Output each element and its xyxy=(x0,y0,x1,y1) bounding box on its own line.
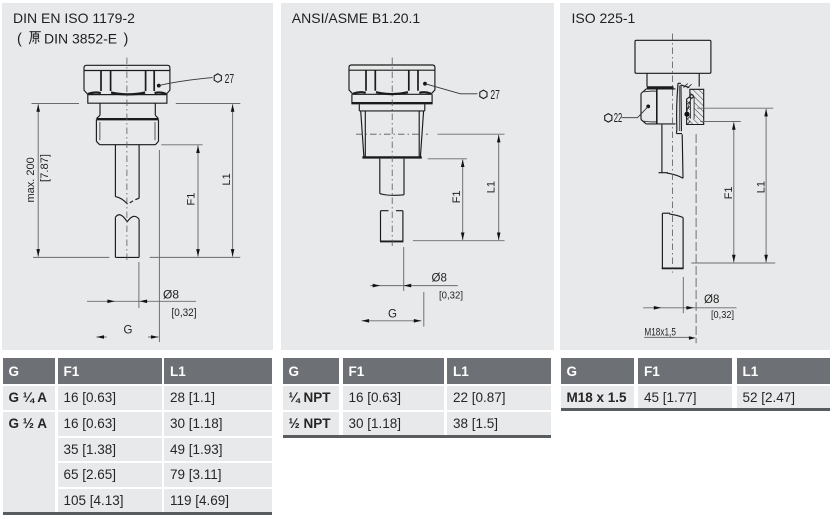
svg-text:Ø8: Ø8 xyxy=(432,272,447,284)
svg-text:DIN EN ISO 1179-2: DIN EN ISO 1179-2 xyxy=(13,10,135,26)
svg-text:Ø8: Ø8 xyxy=(704,294,719,306)
svg-text:DIN 3852-E: DIN 3852-E xyxy=(44,30,117,46)
svg-text:L1: L1 xyxy=(755,181,767,193)
svg-text:G: G xyxy=(124,325,133,337)
svg-text:[0,32]: [0,32] xyxy=(439,290,463,302)
svg-text:L1: L1 xyxy=(221,173,233,185)
svg-text:F1: F1 xyxy=(451,190,463,203)
svg-text:[0,32]: [0,32] xyxy=(711,309,734,321)
svg-text:ANSI/ASME B1.20.1: ANSI/ASME B1.20.1 xyxy=(292,10,421,26)
svg-text:22: 22 xyxy=(614,111,623,125)
svg-text:27: 27 xyxy=(490,88,500,102)
svg-text:[7.87]: [7.87] xyxy=(39,154,51,182)
svg-text:M18x1,5: M18x1,5 xyxy=(644,326,676,338)
svg-text:L1: L1 xyxy=(486,181,498,193)
svg-text:(: ( xyxy=(17,31,22,47)
svg-text:): ) xyxy=(124,31,129,47)
svg-text:F1: F1 xyxy=(723,186,735,199)
svg-text:27: 27 xyxy=(225,72,235,86)
svg-text:Ø8: Ø8 xyxy=(163,288,179,302)
svg-text:[0,32]: [0,32] xyxy=(172,307,197,319)
svg-text:F1: F1 xyxy=(185,193,197,206)
svg-text:ISO 225-1: ISO 225-1 xyxy=(572,10,636,26)
svg-text:max. 200: max. 200 xyxy=(25,157,37,202)
svg-text:G: G xyxy=(388,309,397,321)
